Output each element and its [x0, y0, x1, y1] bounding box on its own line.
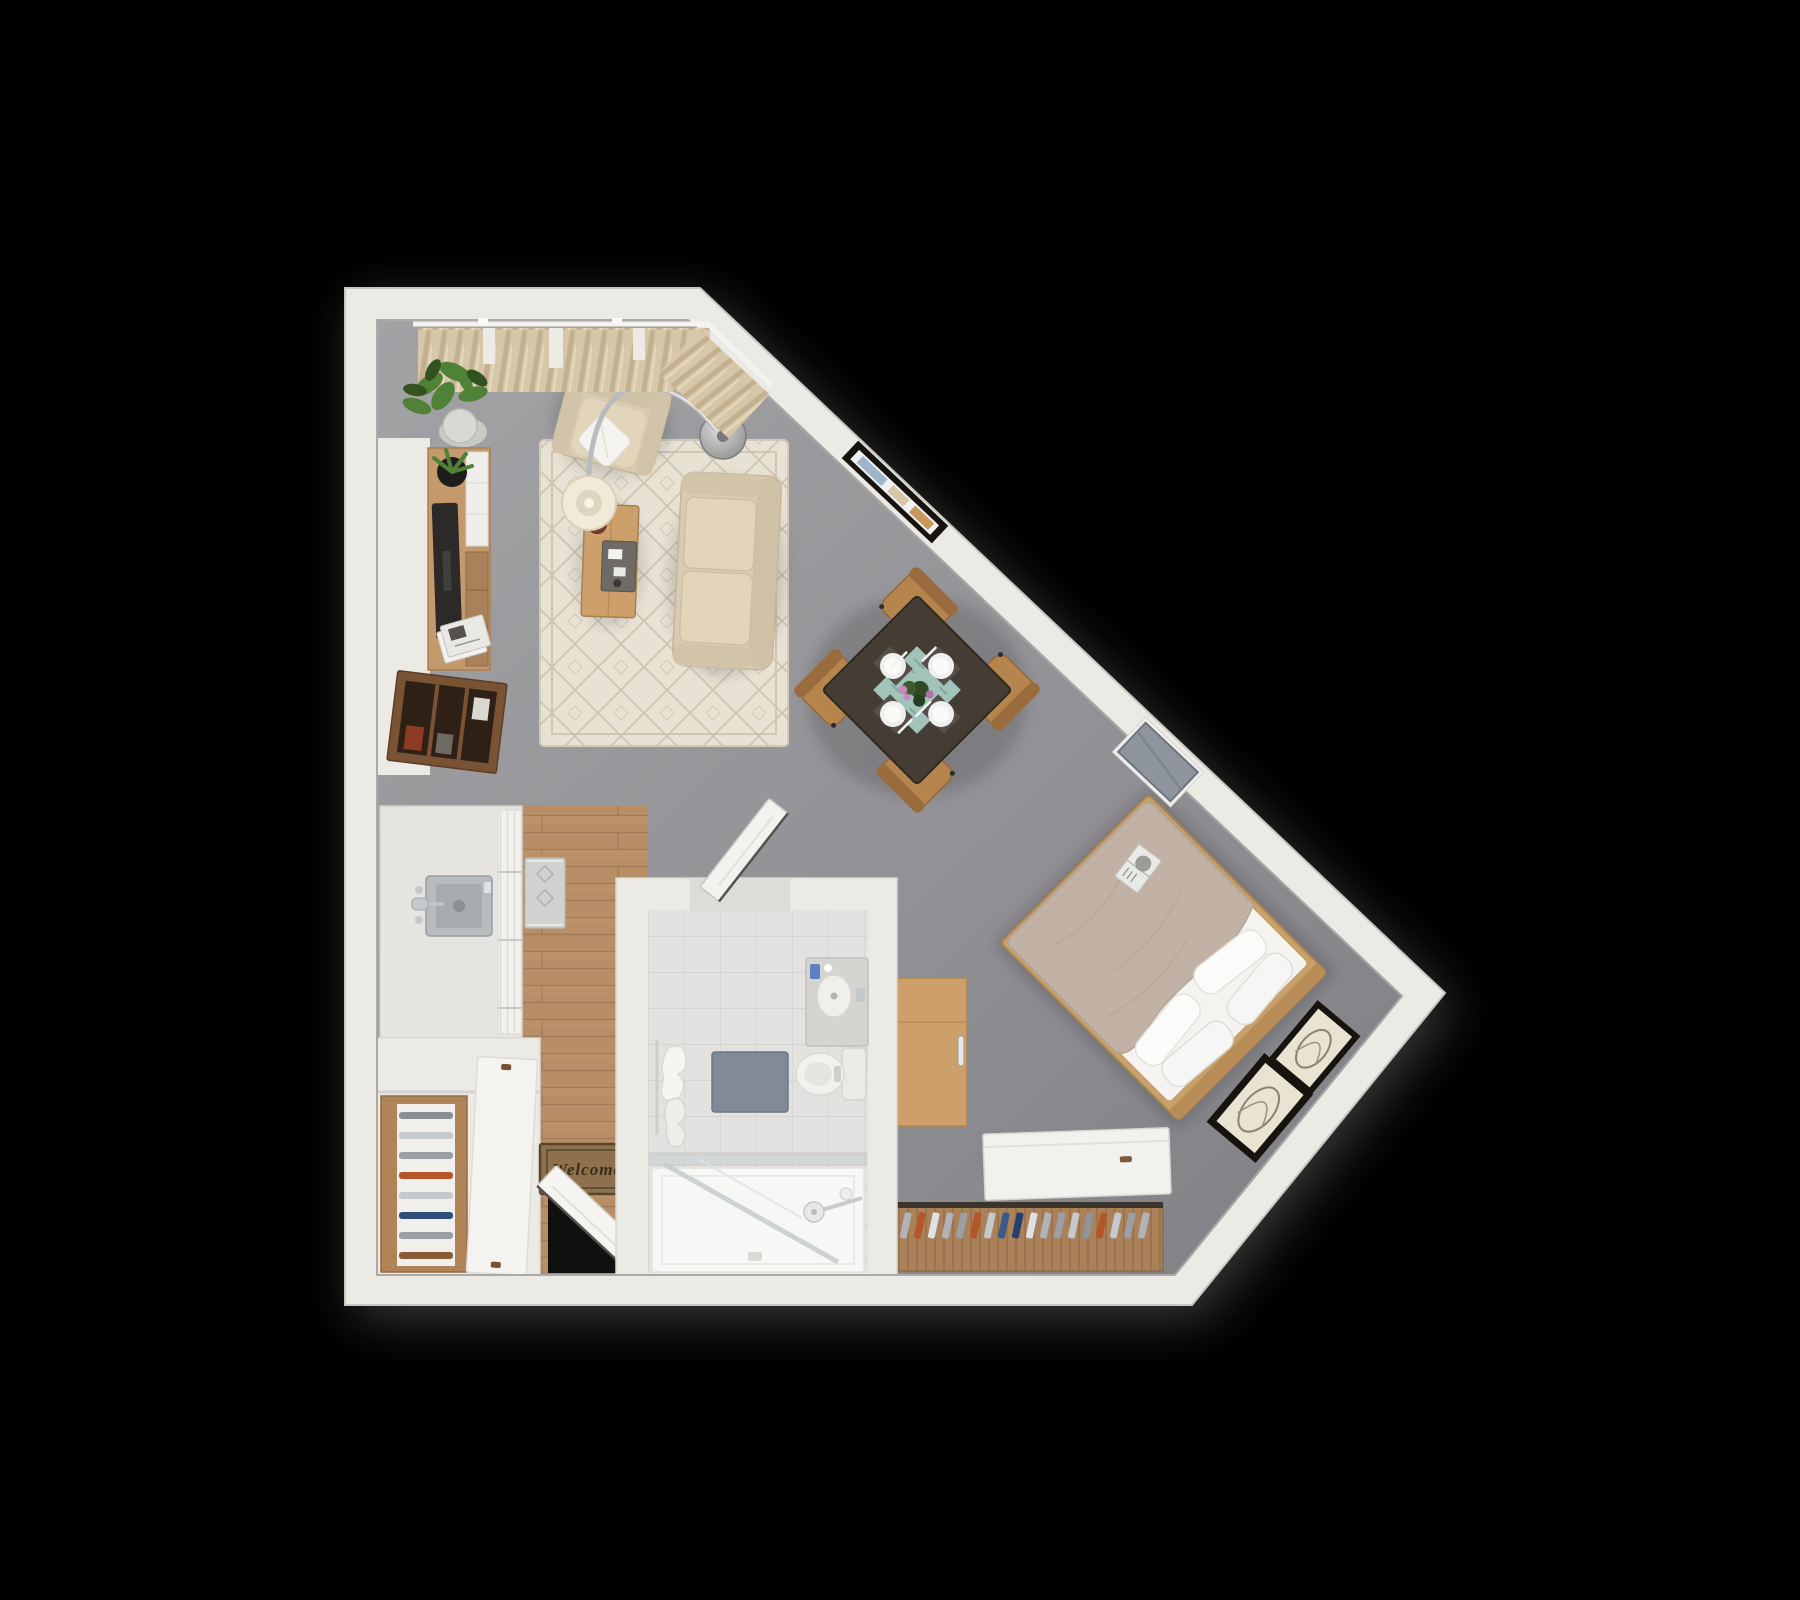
desk — [897, 978, 967, 1126]
wardrobe-handle — [1120, 1156, 1132, 1162]
kitchen-rug — [525, 858, 565, 928]
tv-console — [428, 448, 492, 670]
entry-closet — [377, 1038, 540, 1275]
kitchen-counter — [380, 806, 522, 1038]
sofa — [664, 471, 790, 680]
glass-partition — [650, 1154, 866, 1165]
wardrobe — [983, 1128, 1171, 1200]
toilet — [796, 1048, 866, 1100]
clothes-rack — [897, 1202, 1163, 1271]
vanity — [806, 958, 868, 1046]
shower — [650, 1154, 866, 1272]
tv — [432, 503, 463, 640]
floor-plan-page: Welcome — [0, 0, 1800, 1600]
bath-mat — [712, 1052, 788, 1112]
floor-plan: Welcome — [0, 0, 1800, 1600]
pantry-door — [466, 1057, 537, 1276]
desk-handle — [958, 1036, 964, 1066]
media-cabinet — [387, 671, 507, 774]
